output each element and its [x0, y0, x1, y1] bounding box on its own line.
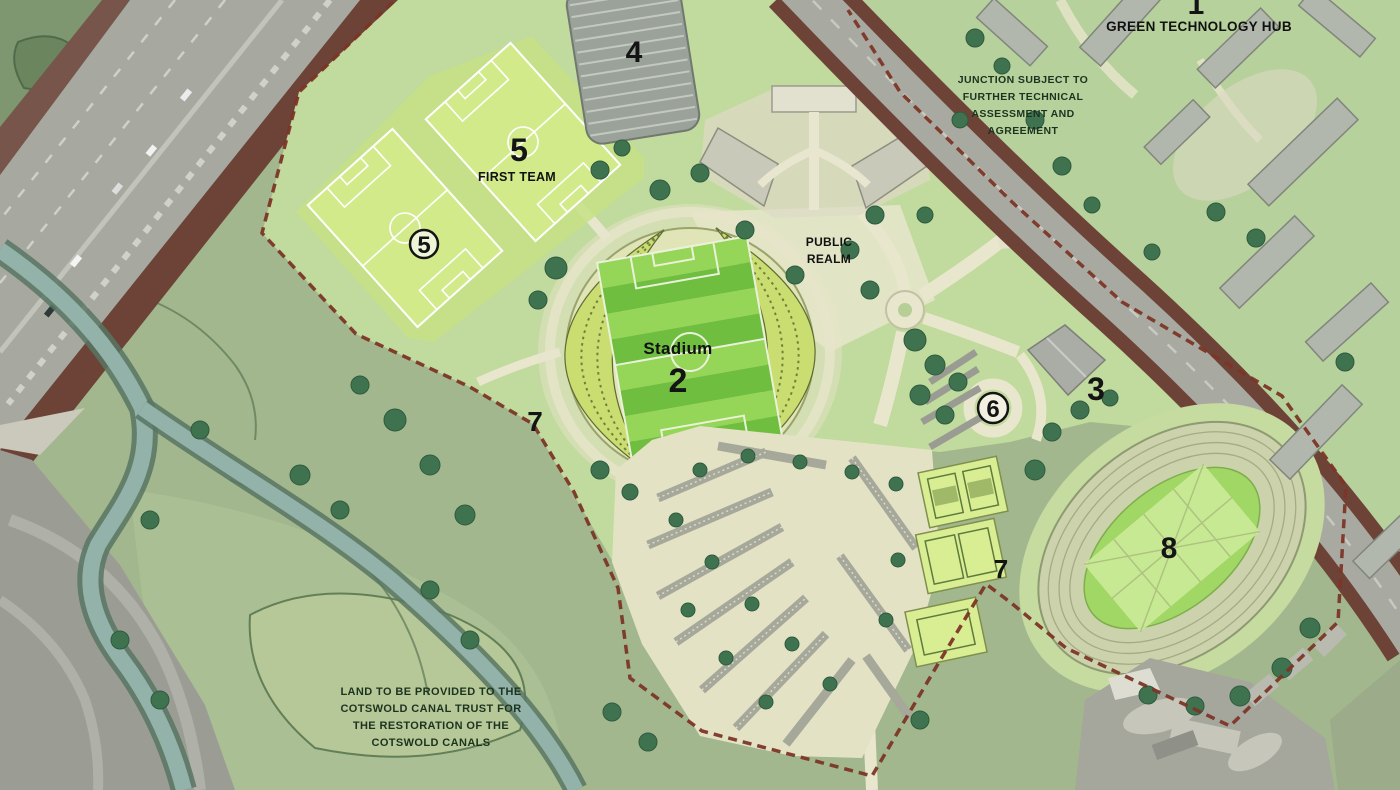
roundabout [886, 291, 924, 329]
boundary-7-number: 7 [527, 406, 543, 437]
parking-structure [564, 0, 701, 146]
track-8-number: 8 [1161, 532, 1178, 565]
svg-text:COTSWOLD CANAL TRUST FOR: COTSWOLD CANAL TRUST FOR [340, 703, 521, 715]
stadium-label: Stadium [643, 339, 712, 358]
first-team-label: FIRST TEAM [478, 170, 556, 184]
masterplan-map: 1 GREEN TECHNOLOGY HUB JUNCTION SUBJECT … [0, 0, 1400, 790]
courts-7-number: 7 [994, 554, 1008, 584]
stadium-number: 2 [669, 362, 688, 400]
public-realm-line2: REALM [807, 252, 851, 266]
pitch-a-marker: 5 [410, 230, 438, 259]
pitch-b-number: 5 [510, 132, 528, 168]
svg-text:THE RESTORATION OF THE: THE RESTORATION OF THE [353, 720, 509, 732]
drop-off-marker: 6 [978, 393, 1008, 423]
public-realm-line1: PUBLIC [806, 235, 852, 249]
hub-title-label: GREEN TECHNOLOGY HUB [1106, 19, 1292, 34]
svg-text:6: 6 [986, 396, 999, 423]
svg-text:JUNCTION SUBJECT TO: JUNCTION SUBJECT TO [958, 74, 1089, 86]
building-3-number: 3 [1087, 371, 1105, 407]
svg-text:AGREEMENT: AGREEMENT [988, 125, 1059, 137]
svg-text:ASSESSMENT AND: ASSESSMENT AND [971, 108, 1074, 120]
hub-number-label: 1 [1188, 0, 1205, 21]
masterplan-svg: 1 GREEN TECHNOLOGY HUB JUNCTION SUBJECT … [0, 0, 1400, 790]
svg-text:FURTHER TECHNICAL: FURTHER TECHNICAL [963, 91, 1084, 103]
svg-text:LAND TO BE PROVIDED TO THE: LAND TO BE PROVIDED TO THE [340, 686, 521, 698]
parking-structure-number: 4 [626, 36, 643, 69]
svg-text:5: 5 [417, 232, 430, 259]
svg-text:COTSWOLD CANALS: COTSWOLD CANALS [371, 737, 490, 749]
